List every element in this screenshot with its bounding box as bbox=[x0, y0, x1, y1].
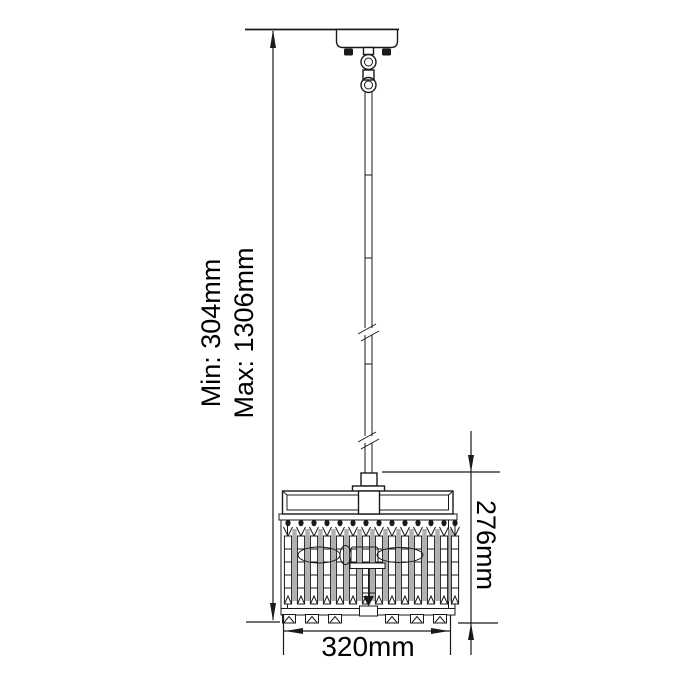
max-height-text: Max: 1306mm bbox=[228, 238, 261, 428]
screw-right bbox=[382, 49, 391, 56]
overall-height-label: Min: 304mm Max: 1306mm bbox=[195, 238, 261, 428]
min-height-text: Min: 304mm bbox=[195, 238, 228, 428]
screw-left bbox=[344, 49, 353, 56]
fixture-line-drawing bbox=[0, 0, 700, 700]
dimension-diagram: Min: 304mm Max: 1306mm 276mm 320mm bbox=[0, 0, 700, 700]
shade-height-label: 276mm bbox=[472, 495, 500, 595]
holder-plate bbox=[350, 563, 385, 569]
rod-connector bbox=[353, 473, 385, 492]
hanging-chain bbox=[361, 48, 376, 93]
hanging-rod bbox=[358, 93, 379, 474]
shade-width-label: 320mm bbox=[300, 631, 436, 663]
band-hub bbox=[359, 491, 380, 514]
shade-band bbox=[283, 491, 454, 514]
top-rail bbox=[279, 514, 457, 520]
